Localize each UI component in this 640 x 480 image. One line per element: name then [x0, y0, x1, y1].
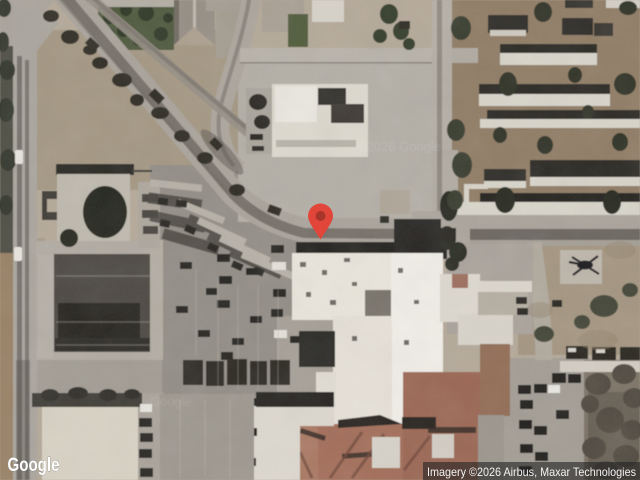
- svg-text:Google: Google: [8, 454, 60, 476]
- svg-text:Imagery ©2026 Airbus, Maxar Te: Imagery ©2026 Airbus, Maxar Technologies: [427, 465, 636, 479]
